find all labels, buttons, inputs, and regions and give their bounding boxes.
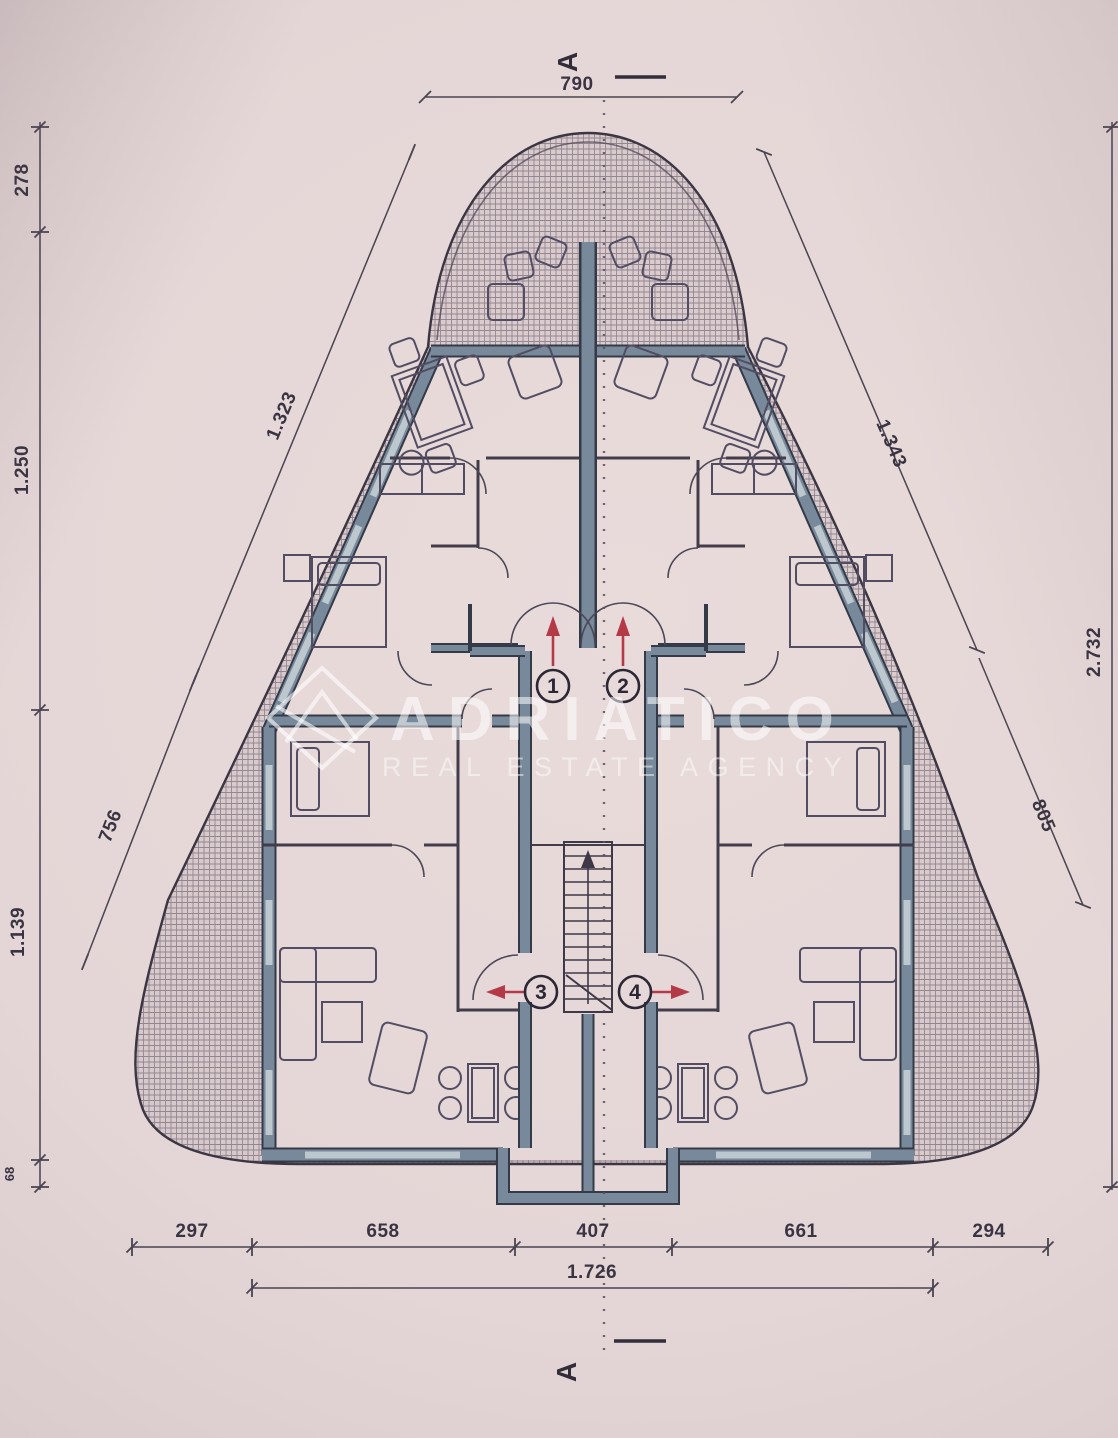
stair-break-line: [566, 975, 612, 1010]
dim-bottom-407: 407: [576, 1221, 609, 1242]
dim-left-1250: 1.250: [12, 445, 33, 495]
floor-plan-photo: 1 2 3 4 790 278 1.250 1.139 68 1.323 756: [0, 0, 1118, 1438]
section-marker-top: A: [552, 52, 583, 72]
dim-bottom-297: 297: [175, 1221, 208, 1242]
dim-bottom-total-1726: 1.726: [567, 1262, 617, 1283]
dim-bottom-658: 658: [366, 1221, 399, 1242]
section-marker-bottom: A: [551, 1362, 582, 1382]
dim-top: 790: [560, 74, 593, 95]
dim-right-diag-805: 805: [1027, 796, 1059, 835]
dim-bottom-661: 661: [784, 1221, 817, 1242]
dim-bottom-294: 294: [972, 1221, 1005, 1242]
dim-left-diag-756: 756: [95, 807, 127, 846]
floor-plan-drawing: 1 2 3 4 790 278 1.250 1.139 68 1.323 756: [0, 0, 1118, 1438]
stair-up-arrow: [581, 850, 595, 868]
unit-3-number: 3: [535, 981, 547, 1004]
dim-left-278: 278: [12, 163, 33, 196]
watermark-title: ADRIATICO: [390, 685, 847, 754]
dim-left-68: 68: [2, 1167, 17, 1181]
dim-right-2732: 2.732: [1084, 627, 1105, 677]
dim-left-1139: 1.139: [8, 907, 29, 957]
unit-4-number: 4: [629, 981, 641, 1004]
watermark-subtitle: REAL ESTATE AGENCY: [382, 752, 851, 782]
dim-right-diag-1343: 1.343: [871, 417, 910, 471]
